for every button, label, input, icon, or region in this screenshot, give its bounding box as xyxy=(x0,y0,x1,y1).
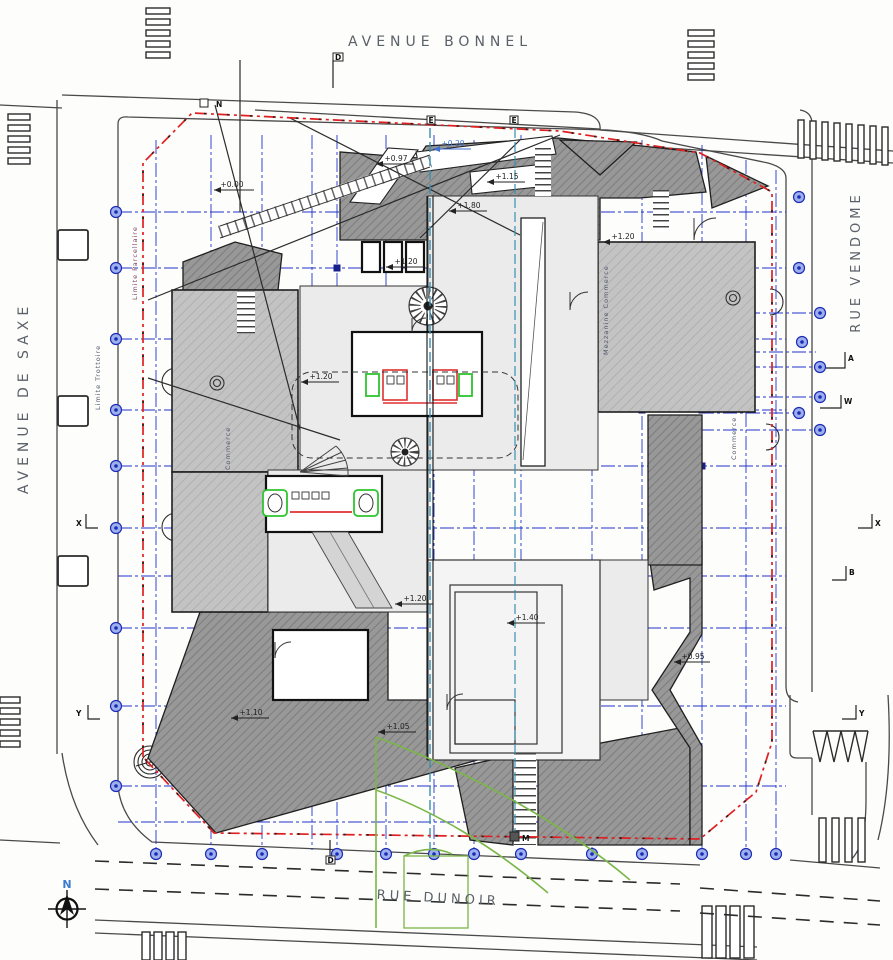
svg-text:Y: Y xyxy=(858,709,865,718)
street-label-top: AVENUE BONNEL xyxy=(348,34,532,50)
svg-text:D: D xyxy=(328,856,334,865)
marker: E xyxy=(427,116,435,125)
svg-text:+1.20: +1.20 xyxy=(395,257,418,266)
svg-text:D: D xyxy=(335,53,341,62)
svg-text:Y: Y xyxy=(75,709,82,718)
commerce-right-label: Commerce xyxy=(730,417,738,460)
marker: Y xyxy=(75,705,100,719)
svg-text:+0.00: +0.00 xyxy=(221,180,244,189)
svg-text:+1.15: +1.15 xyxy=(496,172,519,181)
street-label-left: AVENUE DE SAXE xyxy=(16,302,32,494)
svg-text:+0.95: +0.95 xyxy=(682,652,705,661)
svg-text:W: W xyxy=(844,397,853,406)
svg-text:E: E xyxy=(429,116,434,125)
level-label: +0.00 xyxy=(214,180,254,193)
svg-text:+1.05: +1.05 xyxy=(387,722,410,731)
marker: Y xyxy=(842,705,865,719)
svg-text:+1.40: +1.40 xyxy=(516,613,539,622)
svg-text:X: X xyxy=(875,519,881,528)
svg-text:M: M xyxy=(522,834,529,843)
svg-text:+0.97: +0.97 xyxy=(385,154,408,163)
svg-text:E: E xyxy=(512,116,517,125)
svg-text:+1.20: +1.20 xyxy=(310,372,333,381)
svg-text:X: X xyxy=(76,519,82,528)
ramp-hall xyxy=(428,560,600,760)
marker: X xyxy=(76,514,98,528)
svg-text:+1.80: +1.80 xyxy=(458,201,481,210)
marker: A xyxy=(826,352,854,368)
svg-text:+1.20: +1.20 xyxy=(612,232,635,241)
limite-parcellaire-label: Limite Parcellaire xyxy=(131,226,139,300)
street-label-right: RUE VENDOME xyxy=(849,191,864,332)
street-label-bottom: RUE DUNOIR xyxy=(376,888,500,909)
commerce-left-label: Commerce xyxy=(224,427,232,470)
marker: X xyxy=(858,514,881,528)
limite-trottoire-label: Limite Trottoire xyxy=(94,345,102,410)
svg-text:+1.20: +1.20 xyxy=(404,594,427,603)
tree-pits xyxy=(58,230,88,586)
svg-text:A: A xyxy=(848,354,854,363)
marker: B xyxy=(832,566,855,580)
svg-text:+0.20: +0.20 xyxy=(442,139,465,148)
mezzanine-commerce-label: Mezzanine Commerce xyxy=(602,265,610,355)
north-label: N xyxy=(62,878,71,891)
plan-svg: +0.00 +0.97 +0.20 +1.15 +1.80 +1.20 +1.2… xyxy=(0,0,893,960)
site-plan-drawing: +0.00 +0.97 +0.20 +1.15 +1.80 +1.20 +1.2… xyxy=(0,0,893,960)
zigzag-crossing xyxy=(813,731,868,762)
marker: E xyxy=(510,116,518,125)
marker: D xyxy=(333,53,343,88)
svg-text:+1.10: +1.10 xyxy=(240,708,263,717)
north-arrow: N xyxy=(48,878,86,928)
svg-text:N: N xyxy=(216,100,222,109)
svg-text:B: B xyxy=(849,568,855,577)
